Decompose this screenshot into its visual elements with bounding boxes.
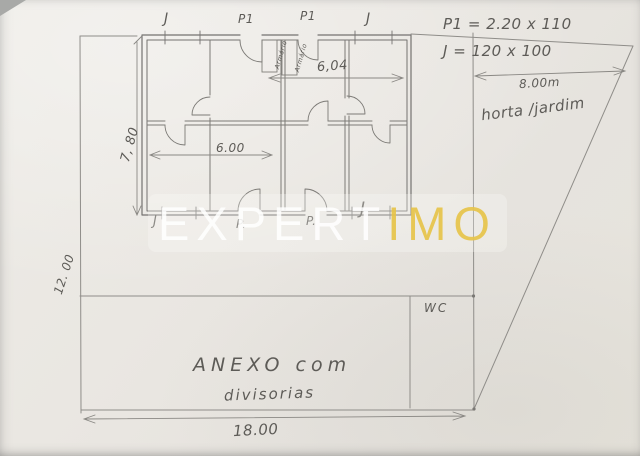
annex-title-line2: divisorias	[224, 385, 316, 403]
door-arc-room-left-center	[192, 97, 210, 115]
plot-left-boundary-line	[80, 36, 81, 413]
door-arc-room-right-center	[347, 96, 365, 114]
dim-line-7-80	[133, 36, 142, 215]
watermark-text-expert: EXPERT	[158, 200, 387, 247]
mid-horizontal-wall	[147, 121, 407, 125]
note-window-spec: J = 120 x 100	[443, 44, 552, 59]
label-wc: WC	[424, 302, 448, 314]
corner-dot	[472, 407, 475, 410]
dim-text-8-00m: 8.00m	[519, 76, 560, 90]
corner-dot	[472, 294, 475, 297]
dim-line-6-00	[150, 151, 272, 159]
annex-title-line1: ANEXO com	[193, 356, 351, 375]
dim-text-6-00: 6.00	[216, 142, 245, 154]
dim-text-6-04: 6,04	[317, 59, 349, 74]
label-window-top-right: J	[366, 12, 371, 26]
label-door-top-1: P1	[238, 13, 254, 25]
note-door-spec: P1 = 2.20 x 110	[443, 17, 572, 32]
door-arc-room-lower-left	[165, 125, 185, 145]
expertimo-watermark: EXPERTIMO	[148, 194, 507, 252]
label-window-top-left: J	[164, 12, 169, 26]
door-arc-room-lower-right	[372, 125, 390, 143]
label-door-top-2: P1	[300, 10, 316, 22]
door-arc-top-left	[240, 40, 262, 62]
watermark-text-imo: IMO	[387, 200, 497, 247]
photographed-floor-plan-sketch: J P1 P1 J J P. P. J Armário Armário 7, 8…	[0, 0, 640, 456]
door-arc-room-center	[308, 101, 328, 121]
dim-text-18-00: 18.00	[233, 422, 279, 439]
